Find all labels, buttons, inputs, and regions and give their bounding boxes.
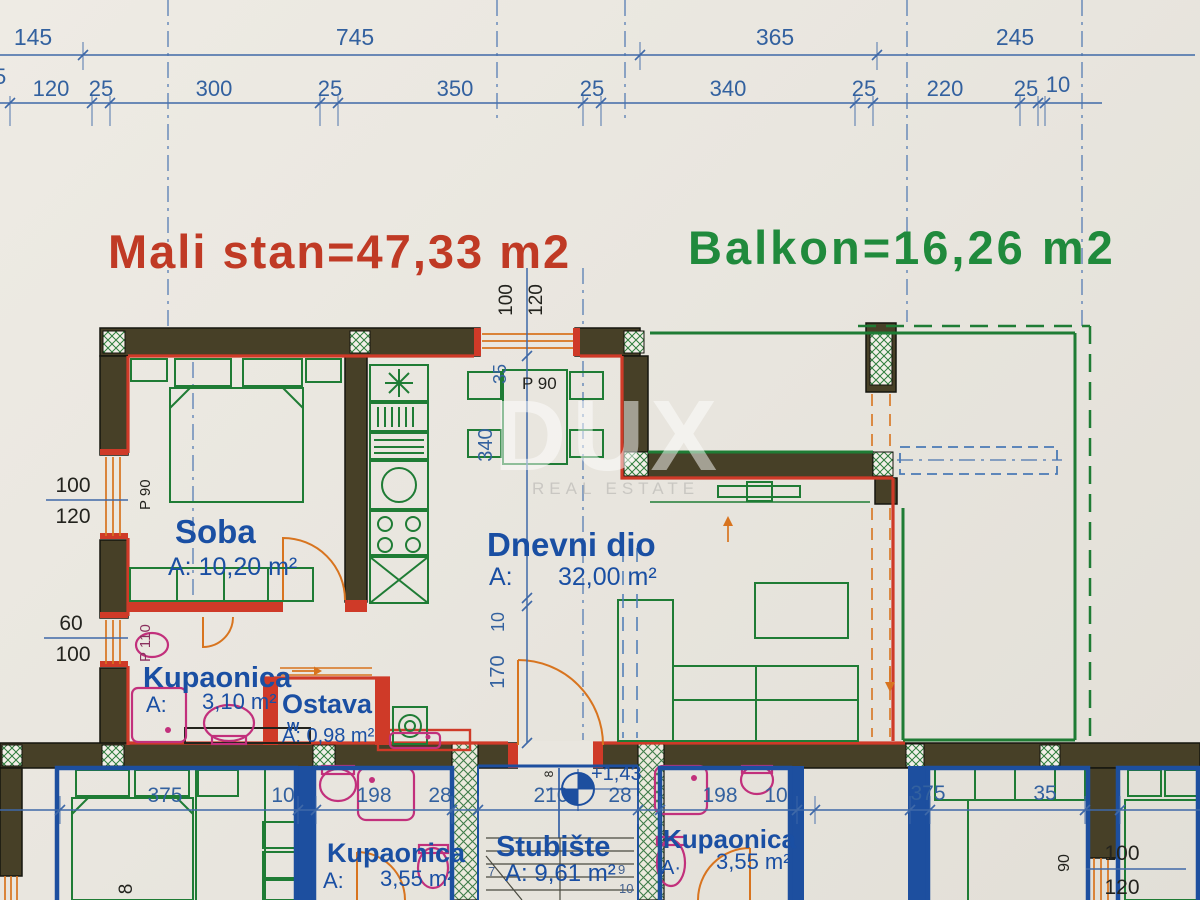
room-kupaonica1-a: A: [146,692,167,717]
right-window-dim-bottom: 120 [1104,876,1139,899]
stair-rot-8: 8 [542,770,556,777]
bdim-198b: 198 [702,784,737,807]
stair-step-9: 9 [618,862,625,877]
room-dnevni-area: 32,00 m² [558,563,657,591]
dim-300: 300 [196,76,233,101]
lower-right-wardrobe [935,768,1085,900]
dim-245: 245 [996,24,1034,50]
dim-25e: 25 [1014,76,1038,101]
left-door-type: P 110 [137,624,154,662]
bdim-198a: 198 [356,784,391,807]
dim-25c: 25 [580,76,604,101]
dim-25b: 25 [318,76,342,101]
left-rot-8: 8 [116,884,137,895]
vdim-10: 10 [488,612,508,632]
bdim-28b: 28 [608,784,631,807]
room-kupaonica2: Kupaonica [327,838,466,868]
balcony-title: Balkon=16,26 m2 [688,221,1116,274]
dim-25-cut: 25 [0,64,6,89]
bdim-10a: 10 [271,784,294,807]
dim-365: 365 [756,24,794,50]
room-soba: Soba [175,513,256,550]
left-door-dim-bottom: 100 [55,643,90,666]
top-center-dim-2: 120 [526,284,547,316]
sink-icon [382,468,416,502]
room-kupaonica2-area: 3,55 m² [380,866,455,891]
room-kupaonica3-a: A· [661,857,681,879]
dim-120: 120 [33,76,70,101]
watermark-brand: DUX [494,380,723,492]
bdim-375b: 375 [910,782,945,805]
right-window-dim-top: 100 [1104,842,1139,865]
up-arrow-icon [723,516,733,526]
sofa [618,600,858,741]
double-bed [131,359,341,502]
floor-plan-drawing: 145 745 365 245 25 120 25 300 25 350 25 … [0,0,1200,900]
room-stubiste: Stubište [496,831,610,863]
room-ostava: Ostava [282,689,373,719]
cooktop-star-icon [385,369,413,397]
top-dimension-labels: 145 745 365 245 25 120 25 300 25 350 25 … [0,24,1070,101]
room-ostava-area: A: 0,98 m² [282,725,375,747]
kitchen-units [370,365,428,603]
washing-machine [393,707,427,744]
bdim-35: 35 [1033,782,1056,805]
dim-220: 220 [927,76,964,101]
top-center-dim-1: 100 [496,284,517,316]
room-dnevni-a: A: [489,563,513,591]
vdim-170: 170 [487,655,509,688]
right-rot-90: 90 [1056,854,1073,872]
left-window-dim-bottom: 120 [55,505,90,528]
bdim-10b: 10 [764,784,787,807]
watermark-tagline: REAL ESTATE [532,479,699,498]
dim-25d: 25 [852,76,876,101]
floor-plan-page: 145 745 365 245 25 120 25 300 25 350 25 … [0,0,1200,900]
dim-25a: 25 [89,76,113,101]
dim-350: 350 [437,76,474,101]
watermark: DUX REAL ESTATE [494,380,723,498]
bdim-375a: 375 [147,784,182,807]
dim-145: 145 [14,24,52,50]
dim-745: 745 [336,24,374,50]
coffee-table [755,583,848,638]
stair-step-10: 10 [619,881,633,896]
lower-left-bed [72,768,297,900]
dim-10t: 10 [1046,72,1070,97]
apartment-title: Mali stan=47,33 m2 [108,225,571,278]
balcony-bench [718,482,800,501]
room-stubiste-area: A: 9,61 m² [505,860,616,887]
stair-step-7: 7 [488,864,495,879]
room-kupaonica2-a: A: [323,868,344,893]
elevation-label: +1,43 [591,763,642,785]
left-window-dim-top: 100 [55,474,90,497]
room-kupaonica3-area: 3,55 m² [716,849,791,874]
left-window-type: P 90 [137,479,154,510]
dim-340t: 340 [710,76,747,101]
left-door-dim-top: 60 [59,612,82,635]
room-kupaonica1-area: 3,10 m² [202,689,277,714]
room-soba-area: A: 10,20 m² [168,553,297,581]
room-dnevni: Dnevni dio [487,526,656,563]
bdim-28a: 28 [428,784,451,807]
